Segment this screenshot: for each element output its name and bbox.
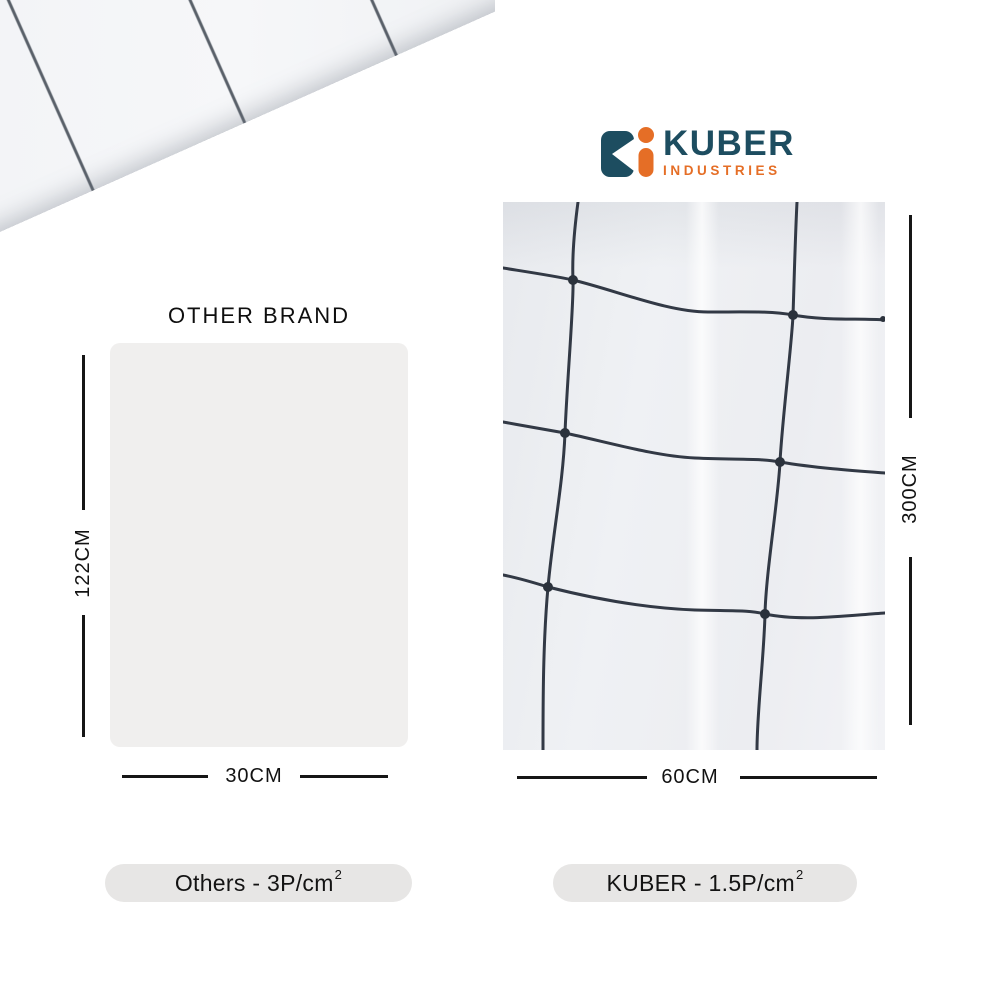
product-comparison-canvas: KUBER INDUSTRIES OTHER BRAND 122CM 30CM bbox=[0, 0, 1000, 1000]
kuber-sheet-photo bbox=[503, 202, 885, 750]
kuber-width-line-right bbox=[740, 776, 877, 779]
kuber-logo-icon bbox=[601, 127, 655, 179]
other-width-line-left bbox=[122, 775, 208, 778]
tilted-sheet-photo bbox=[0, 0, 495, 250]
other-height-label: 122CM bbox=[70, 513, 96, 613]
kuber-width-label: 60CM bbox=[640, 764, 740, 790]
other-brand-title: OTHER BRAND bbox=[110, 303, 408, 329]
other-brand-sheet bbox=[110, 343, 408, 747]
kuber-logo-text: KUBER INDUSTRIES bbox=[663, 127, 795, 178]
others-density-text: Others - 3P/cm bbox=[175, 870, 334, 897]
other-width-line-right bbox=[300, 775, 388, 778]
kuber-height-line-top bbox=[909, 215, 912, 418]
kuber-width-line-left bbox=[517, 776, 647, 779]
kuber-density-text: KUBER - 1.5P/cm bbox=[606, 870, 795, 897]
kuber-height-line-bottom bbox=[909, 557, 912, 725]
sheet-grid-pattern bbox=[503, 202, 885, 750]
logo-industries-label: INDUSTRIES bbox=[663, 163, 795, 178]
kuber-density-pill: KUBER - 1.5P/cm2 bbox=[553, 864, 857, 902]
tilted-sheet-surface bbox=[0, 0, 495, 247]
logo-brand-name: KUBER bbox=[663, 127, 795, 160]
other-height-line-bottom bbox=[82, 615, 85, 737]
other-height-line-top bbox=[82, 355, 85, 510]
kuber-logo: KUBER INDUSTRIES bbox=[601, 127, 795, 179]
kuber-height-label: 300CM bbox=[897, 439, 923, 539]
other-width-label: 30CM bbox=[204, 763, 304, 789]
others-density-pill: Others - 3P/cm2 bbox=[105, 864, 412, 902]
